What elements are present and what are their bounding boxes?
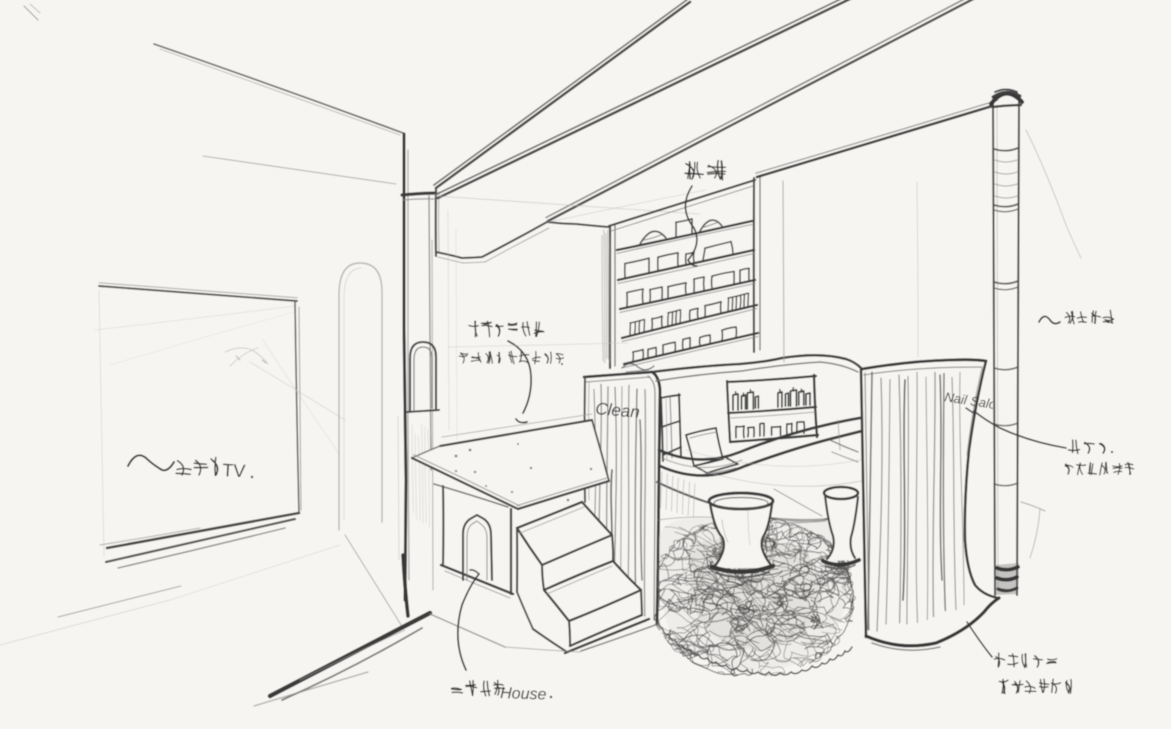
svg-text:House: House — [500, 685, 547, 704]
svg-text:Clean: Clean — [595, 399, 641, 422]
svg-text:TV: TV — [222, 460, 246, 481]
